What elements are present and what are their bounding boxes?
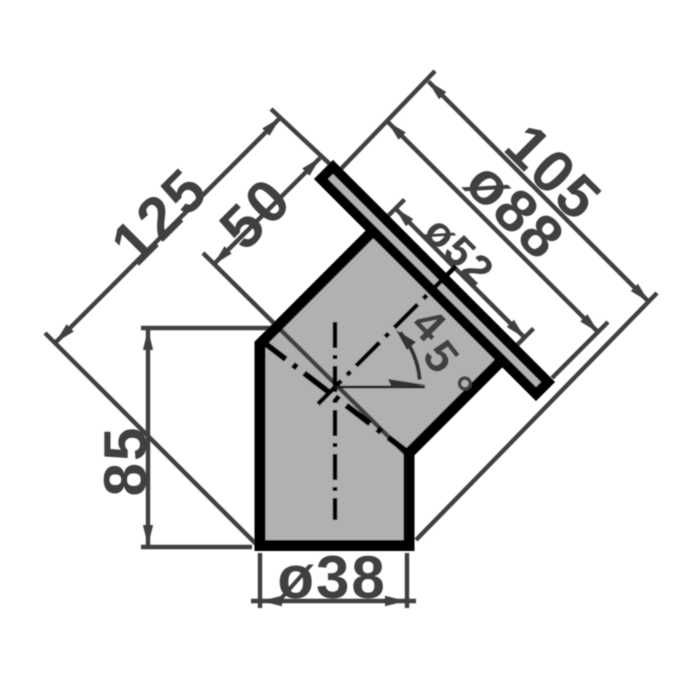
svg-text:85: 85: [92, 426, 159, 497]
svg-text:ø38: ø38: [277, 544, 386, 611]
